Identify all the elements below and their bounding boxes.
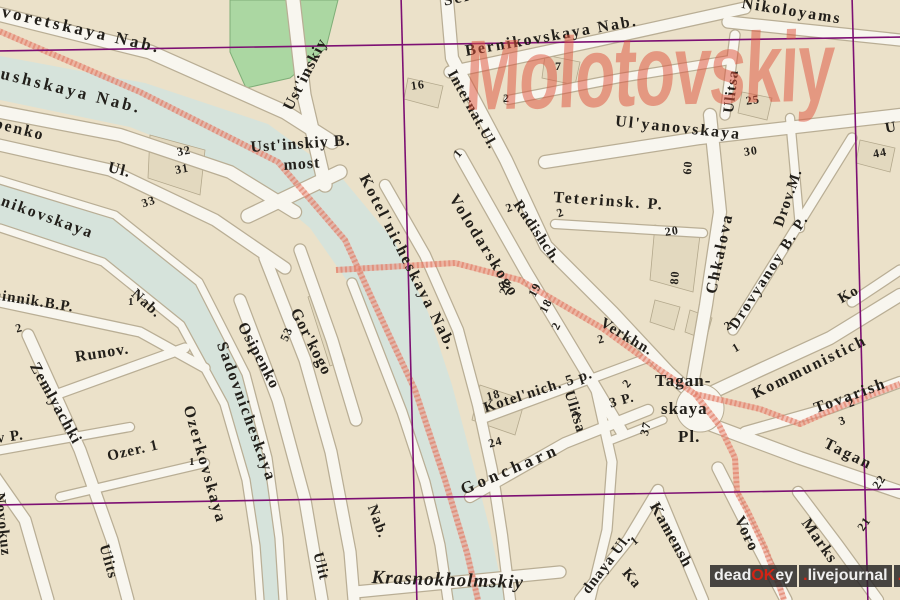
credit-watermark: deadOKey .livejournal .com [710,565,900,587]
map-label: 44 [872,146,888,160]
map-label: Ulit [309,551,330,582]
map-label: Nab. [364,503,390,540]
map-label: Ozerkovskaya [180,404,229,525]
map-label: Ko [836,283,862,307]
map-label: 37 [638,420,653,436]
map-label: Novokuz [0,492,13,557]
map-label: Kamensh [646,500,695,571]
map-label: Voro [731,514,762,554]
map-label: Marks [798,516,840,566]
map-label: aushskaya Nab. [0,62,144,116]
map-label: 21 [855,515,873,533]
map-label: Pl. [678,428,700,445]
map-label: Teterinsk. P. [553,190,664,214]
map-label: 1 [451,147,465,160]
map-canvas: kvoretskaya Nab.aushskaya Nab.penkoUl.Us… [0,0,900,600]
map-label: skaya [661,400,708,417]
map-label: 3 [837,414,848,428]
map-label: 2 [14,321,24,334]
map-label: Zemlyachki [26,360,84,447]
credit-box-1: deadOKey [710,565,797,587]
map-label: Runov. [74,341,130,365]
map-label: Serebry [442,0,512,10]
map-label: 18 [485,387,502,402]
map-label: 2 [555,206,566,220]
map-label: 2 [596,332,606,345]
map-label: 3 P. [608,391,636,411]
district-watermark: Molotovskiy [463,16,835,126]
map-label: kvoretskaya Nab. [0,0,163,56]
map-label: 80 [668,270,681,285]
map-label: Ulits [96,543,120,581]
map-label: 20 [664,224,680,238]
map-label: 53 [278,325,295,343]
map-label: Goncharn [458,441,562,498]
map-label: 24 [487,434,504,449]
map-label: Ozer. 1 [106,438,160,464]
map-label: Ust'inskiy [281,36,331,113]
map-label: Ust'inskiy B. [250,133,351,156]
map-label: 22 [870,473,888,491]
map-label: Drovyanoy B. P. [727,212,812,332]
map-label: Ka [619,566,644,592]
credit-box-3: .com [894,565,900,587]
map-label: v P. [0,428,25,447]
map-label: nnikovskaya [0,190,96,242]
map-label: 31 [174,162,190,176]
map-label: Tagan [821,436,875,473]
map-label: 1 [189,457,196,468]
map-label: 60 [681,160,694,175]
map-label: 33 [140,194,157,210]
map-label: 1 [128,297,135,308]
map-label: Ul. [106,160,132,181]
map-label: 18 [537,297,554,315]
map-label: 2 [620,377,634,390]
map-label: 32 [176,144,192,158]
map-label: penko [0,116,46,144]
map-label: Tagan- [655,372,711,389]
map-label: 16 [410,78,426,92]
map-label: Kotel'nicheskaya Nab. [356,172,459,354]
map-label: dnaya Ul. [580,532,635,597]
map-label: 19 [526,281,543,299]
map-label: Krasnokholmskiy [371,568,524,592]
map-label: Chkalova [704,212,737,295]
map-label: Verkhn. [597,316,655,359]
map-label: Gor'kogo [287,306,334,378]
map-label: 1 [730,341,742,355]
map-label: most [283,155,321,174]
credit-box-2: .livejournal [799,565,891,587]
map-label: hinnik.B.P. [0,288,75,316]
map-label: U [884,120,898,137]
map-label: 2 [549,320,563,332]
map-label: 30 [743,144,759,158]
